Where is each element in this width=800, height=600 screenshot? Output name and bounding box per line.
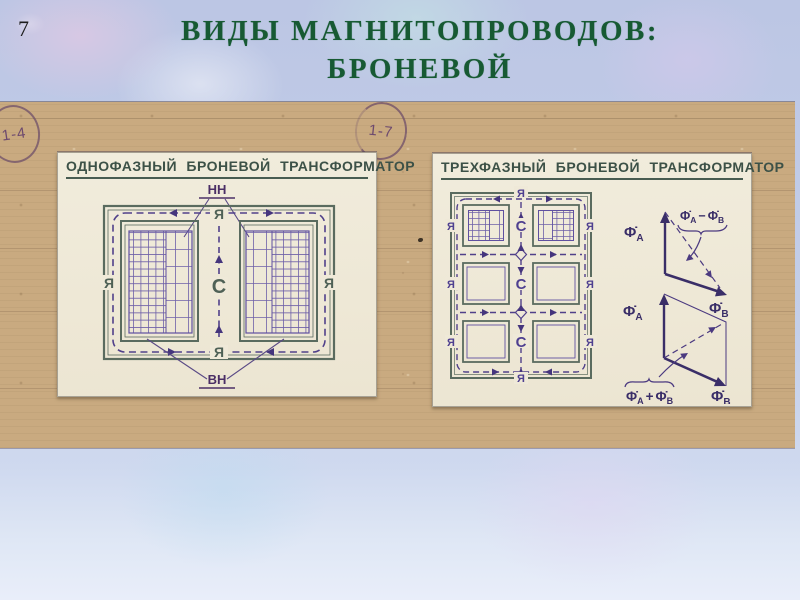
phi-a-label: Φ̇A bbox=[624, 224, 644, 244]
yoke-label-left-1: Я bbox=[447, 221, 455, 233]
winding-grid-top-right bbox=[539, 211, 574, 241]
yoke-label-bottom: Я bbox=[214, 344, 224, 360]
single-phase-core-diagram: НН bbox=[58, 181, 376, 396]
scanned-notebook-photo: 1-4 1-7 ОДНОФАЗНЫЙ БРОНЕВОЙ ТРАНСФОРМАТО… bbox=[0, 102, 795, 448]
yoke-label-left-2: Я bbox=[447, 279, 455, 291]
core-limb-label-2: С bbox=[516, 276, 527, 293]
yoke-label-left: Я bbox=[104, 275, 114, 291]
yoke-label-right-1: Я bbox=[586, 221, 594, 233]
slide-title: ВИДЫ МАГНИТОПРОВОДОВ: БРОНЕВОЙ bbox=[40, 12, 800, 89]
core-limb-label-1: С bbox=[516, 218, 527, 235]
single-phase-panel: ОДНОФАЗНЫЙ БРОНЕВОЙ ТРАНСФОРМАТОР НН bbox=[57, 152, 377, 397]
winding-bottom-label: ВН bbox=[208, 372, 227, 387]
slide-title-line2: БРОНЕВОЙ bbox=[40, 50, 800, 88]
label-brace bbox=[625, 379, 674, 387]
three-phase-diagram: Я Я Я Я Я Я Я Я С bbox=[433, 182, 751, 404]
core-limb-label-3: С bbox=[516, 334, 527, 351]
single-phase-title: ОДНОФАЗНЫЙ БРОНЕВОЙ ТРАНСФОРМАТОР bbox=[66, 158, 368, 179]
presentation-slide: 7 ВИДЫ МАГНИТОПРОВОДОВ: БРОНЕВОЙ 1-4 1-7… bbox=[0, 0, 800, 600]
phi-b-label: Φ̇B bbox=[709, 300, 729, 320]
winding-grid-right bbox=[246, 231, 309, 333]
yoke-label-left-3: Я bbox=[447, 337, 455, 349]
yoke-label-right-2: Я bbox=[586, 279, 594, 291]
phi-a-plus-phi-b-label: Φ̇A+Φ̇B bbox=[626, 389, 674, 404]
figure-ref-label: 1-4 bbox=[1, 124, 28, 144]
yoke-label-top: Я bbox=[517, 188, 525, 200]
yoke-label-bottom: Я bbox=[517, 373, 525, 385]
figure-ref-circle-1-4: 1-4 bbox=[0, 102, 44, 167]
phi-a-minus-phi-b-label: Φ̇A−Φ̇B bbox=[680, 209, 724, 225]
slide-title-line1: ВИДЫ МАГНИТОПРОВОДОВ: bbox=[40, 12, 800, 50]
cardboard-speck bbox=[418, 238, 423, 242]
yoke-label-right: Я bbox=[324, 275, 334, 291]
phi-b-label: Φ̇B bbox=[711, 388, 731, 404]
winding-top-label: НН bbox=[208, 182, 227, 197]
yoke-label-right-3: Я bbox=[586, 337, 594, 349]
figure-ref-label: 1-7 bbox=[368, 121, 394, 140]
core-limb-label: С bbox=[212, 276, 226, 298]
yoke-label-top: Я bbox=[214, 206, 224, 222]
three-phase-panel: ТРЕХФАЗНЫЙ БРОНЕВОЙ ТРАНСФОРМАТОР bbox=[432, 153, 752, 407]
label-brace bbox=[678, 225, 727, 234]
winding-grid-left bbox=[129, 231, 192, 333]
page-number: 7 bbox=[18, 16, 29, 42]
three-phase-title: ТРЕХФАЗНЫЙ БРОНЕВОЙ ТРАНСФОРМАТОР bbox=[441, 159, 743, 180]
phi-a-label: Φ̇A bbox=[623, 303, 643, 323]
winding-grid-top-left bbox=[469, 211, 504, 241]
flux-vector-diagram-difference: Φ̇A Φ̇A−Φ̇B Φ̇B bbox=[624, 209, 729, 320]
